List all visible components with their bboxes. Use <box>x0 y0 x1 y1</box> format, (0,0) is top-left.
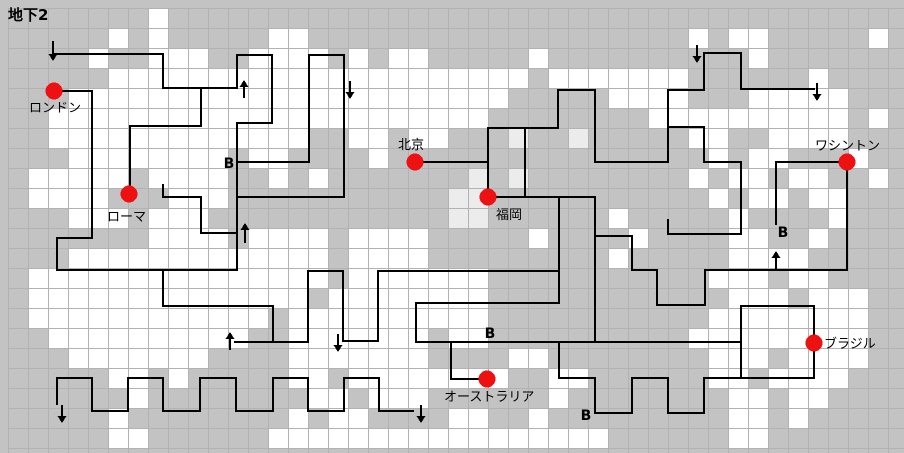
explored-cell <box>409 229 428 248</box>
explored-cell <box>109 89 128 108</box>
explored-cell <box>529 49 548 68</box>
explored-cell <box>489 429 508 448</box>
explored-cell <box>729 409 748 428</box>
explored-cell <box>289 329 308 348</box>
explored-cell <box>89 349 108 368</box>
explored-cell <box>309 229 328 248</box>
explored-cell <box>69 209 88 228</box>
explored-cell <box>89 309 108 328</box>
explored-cell <box>109 149 128 168</box>
explored-cell <box>69 349 88 368</box>
explored-cell <box>449 429 468 448</box>
map-canvas: BBBBロンドンローマ北京福岡ワシントンブラジルオーストラリア地下2 <box>0 0 904 453</box>
explored-cell <box>189 149 208 168</box>
explored-cell <box>189 309 208 328</box>
explored-cell <box>249 149 268 168</box>
explored-cell <box>689 329 708 348</box>
explored-cell <box>389 389 408 408</box>
explored-cell <box>289 409 308 428</box>
explored-cell <box>449 69 468 88</box>
explored-cell <box>29 189 48 208</box>
explored-cell <box>409 289 428 308</box>
explored-cell <box>209 309 228 328</box>
explored-cell <box>309 309 328 328</box>
explored-cell <box>189 69 208 88</box>
explored-cell <box>69 289 88 308</box>
explored-cell <box>429 369 448 388</box>
explored-cell <box>49 129 68 148</box>
city-label-london: ロンドン <box>29 101 81 116</box>
explored-cell <box>369 149 388 168</box>
explored-cell <box>349 49 368 68</box>
explored-cell <box>469 409 488 428</box>
explored-cell <box>749 189 768 208</box>
explored-cell <box>809 189 828 208</box>
explored-cell <box>729 269 748 288</box>
explored-cell <box>109 309 128 328</box>
explored-cell <box>109 69 128 88</box>
explored-cell <box>789 389 808 408</box>
explored-cell <box>109 289 128 308</box>
explored-cell <box>149 149 168 168</box>
explored-cell <box>129 309 148 328</box>
explored-cell <box>669 109 688 128</box>
explored-cell <box>789 309 808 328</box>
explored-cell <box>609 249 628 268</box>
explored-cell <box>109 329 128 348</box>
explored-cell <box>349 249 368 268</box>
explored-cell <box>829 109 848 128</box>
explored-cell <box>369 89 388 108</box>
explored-cell <box>869 109 888 128</box>
explored-cell <box>449 309 468 328</box>
explored-cell <box>369 429 388 448</box>
explored-cell <box>709 309 728 328</box>
explored-cell <box>309 49 328 68</box>
explored-cell <box>389 329 408 348</box>
explored-cell <box>789 349 808 368</box>
underground-map-level2: BBBBロンドンローマ北京福岡ワシントンブラジルオーストラリア地下2 <box>0 0 904 453</box>
explored-cell <box>369 109 388 128</box>
explored-cell <box>149 249 168 268</box>
explored-cell <box>269 429 288 448</box>
explored-cell <box>269 249 288 268</box>
explored-cell <box>349 269 368 288</box>
explored-cell <box>229 249 248 268</box>
explored-cell <box>529 229 548 248</box>
explored-cell <box>829 189 848 208</box>
explored-cell <box>529 349 548 368</box>
explored-cell <box>209 269 228 288</box>
explored-cell <box>229 89 248 108</box>
explored-cell <box>289 309 308 328</box>
explored-cell <box>149 169 168 188</box>
city-marker-rome[interactable] <box>121 186 138 203</box>
explored-cell <box>309 369 328 388</box>
explored-cell <box>69 169 88 188</box>
explored-cell <box>709 269 728 288</box>
explored-cell <box>209 189 228 208</box>
explored-cell <box>209 249 228 268</box>
explored-cell <box>189 249 208 268</box>
explored-cell <box>149 129 168 148</box>
explored-cell <box>809 269 828 288</box>
explored-cell <box>169 349 188 368</box>
b-connection-label: B <box>778 225 789 241</box>
b-connection-label: B <box>485 326 496 342</box>
explored-cell <box>29 309 48 328</box>
explored-cell <box>349 229 368 248</box>
explored-cell <box>49 169 68 188</box>
explored-cell <box>249 269 268 288</box>
explored-cell <box>109 109 128 128</box>
explored-cell <box>149 349 168 368</box>
explored-cell <box>69 329 88 348</box>
explored-cell <box>309 429 328 448</box>
explored-cell <box>429 429 448 448</box>
explored-cell <box>69 149 88 168</box>
explored-cell <box>389 229 408 248</box>
explored-cell <box>249 249 268 268</box>
explored-cell <box>469 69 488 88</box>
explored-cell <box>769 329 788 348</box>
city-marker-brazil[interactable] <box>806 335 823 352</box>
explored-cell <box>589 429 608 448</box>
explored-cell <box>509 69 528 88</box>
explored-cell <box>869 29 888 48</box>
explored-cell <box>69 189 88 208</box>
explored-cell <box>289 89 308 108</box>
explored-cell <box>289 269 308 288</box>
explored-cell <box>429 289 448 308</box>
explored-cell <box>409 109 428 128</box>
partially-explored-cell <box>469 169 488 188</box>
partially-explored-cell <box>469 209 488 228</box>
explored-cell <box>169 249 188 268</box>
explored-cell <box>189 89 208 108</box>
explored-cell <box>69 269 88 288</box>
explored-cell <box>289 249 308 268</box>
explored-cell <box>569 429 588 448</box>
explored-cell <box>849 309 868 328</box>
explored-cell <box>169 49 188 68</box>
explored-cell <box>149 309 168 328</box>
explored-cell <box>249 69 268 88</box>
explored-cell <box>109 129 128 148</box>
explored-cell <box>229 309 248 328</box>
city-marker-fukuoka[interactable] <box>480 189 497 206</box>
city-marker-london[interactable] <box>46 83 63 100</box>
explored-cell <box>149 69 168 88</box>
explored-cell <box>849 289 868 308</box>
explored-cell <box>49 269 68 288</box>
explored-cell <box>289 69 308 88</box>
explored-cell <box>449 289 468 308</box>
explored-cell <box>809 109 828 128</box>
partially-explored-cell <box>449 209 468 228</box>
explored-cell <box>349 349 368 368</box>
explored-cell <box>629 89 648 108</box>
explored-cell <box>129 389 148 408</box>
explored-cell <box>789 269 808 288</box>
explored-cell <box>149 49 168 68</box>
explored-cell <box>709 189 728 208</box>
explored-cell <box>549 69 568 88</box>
explored-cell <box>829 89 848 108</box>
explored-cell <box>829 369 848 388</box>
city-label-beijing: 北京 <box>398 138 424 153</box>
explored-cell <box>89 269 108 288</box>
city-marker-washington[interactable] <box>839 154 856 171</box>
explored-cell <box>29 289 48 308</box>
explored-cell <box>349 329 368 348</box>
explored-cell <box>249 309 268 328</box>
explored-cell <box>829 309 848 328</box>
explored-cell <box>729 249 748 268</box>
explored-cell <box>249 229 268 248</box>
explored-cell <box>509 429 528 448</box>
explored-cell <box>89 329 108 348</box>
explored-cell <box>529 429 548 448</box>
explored-cell <box>709 329 728 348</box>
explored-cell <box>729 389 748 408</box>
explored-cell <box>389 429 408 448</box>
explored-cell <box>149 269 168 288</box>
explored-cell <box>669 89 688 108</box>
explored-cell <box>749 49 768 68</box>
explored-cell <box>269 229 288 248</box>
explored-cell <box>369 129 388 148</box>
explored-cell <box>809 229 828 248</box>
explored-cell <box>389 289 408 308</box>
explored-cell <box>409 89 428 108</box>
explored-cell <box>129 269 148 288</box>
explored-cell <box>349 69 368 88</box>
explored-cell <box>209 89 228 108</box>
explored-cell <box>489 89 508 108</box>
b-connection-label: B <box>581 408 592 424</box>
explored-cell <box>709 349 728 368</box>
explored-cell <box>129 329 148 348</box>
explored-cell <box>189 329 208 348</box>
explored-cell <box>709 109 728 128</box>
explored-cell <box>129 69 148 88</box>
explored-cell <box>249 89 268 108</box>
explored-cell <box>189 349 208 368</box>
explored-cell <box>409 49 428 68</box>
explored-cell <box>649 109 668 128</box>
explored-cell <box>429 69 448 88</box>
city-label-fukuoka: 福岡 <box>496 208 522 223</box>
explored-cell <box>469 89 488 108</box>
explored-cell <box>289 349 308 368</box>
explored-cell <box>309 389 328 408</box>
city-label-brazil: ブラジル <box>824 336 876 352</box>
explored-cell <box>749 149 768 168</box>
explored-cell <box>529 409 548 428</box>
explored-cell <box>169 209 188 228</box>
explored-cell <box>229 129 248 148</box>
explored-cell <box>109 429 128 448</box>
explored-cell <box>289 229 308 248</box>
city-marker-australia[interactable] <box>479 371 496 388</box>
explored-cell <box>429 309 448 328</box>
explored-cell <box>169 369 188 388</box>
explored-cell <box>169 89 188 108</box>
explored-cell <box>69 309 88 328</box>
explored-cell <box>189 129 208 148</box>
explored-cell <box>169 129 188 148</box>
explored-cell <box>449 89 468 108</box>
explored-cell <box>469 429 488 448</box>
explored-cell <box>729 309 748 328</box>
explored-cell <box>689 169 708 188</box>
explored-cell <box>749 429 768 448</box>
explored-cell <box>309 69 328 88</box>
map-title: 地下2 <box>8 6 48 24</box>
explored-cell <box>349 309 368 328</box>
explored-cell <box>709 149 728 168</box>
explored-cell <box>389 49 408 68</box>
explored-cell <box>89 49 108 68</box>
explored-cell <box>769 189 788 208</box>
explored-cell <box>789 89 808 108</box>
explored-cell <box>389 309 408 328</box>
explored-cell <box>409 309 428 328</box>
explored-cell <box>749 109 768 128</box>
explored-cell <box>189 49 208 68</box>
explored-cell <box>469 109 488 128</box>
explored-cell <box>409 69 428 88</box>
explored-cell <box>749 349 768 368</box>
explored-cell <box>789 249 808 268</box>
explored-cell <box>29 269 48 288</box>
explored-cell <box>549 389 568 408</box>
explored-cell <box>169 269 188 288</box>
explored-cell <box>769 129 788 148</box>
explored-cell <box>349 89 368 108</box>
explored-cell <box>609 89 628 108</box>
explored-cell <box>289 429 308 448</box>
explored-cell <box>169 329 188 348</box>
explored-cell <box>349 429 368 448</box>
explored-cell <box>429 129 448 148</box>
explored-cell <box>189 169 208 188</box>
explored-cell <box>249 129 268 148</box>
explored-cell <box>409 369 428 388</box>
explored-cell <box>69 129 88 148</box>
city-marker-beijing[interactable] <box>407 154 424 171</box>
explored-cell <box>809 69 828 88</box>
explored-cell <box>749 229 768 248</box>
explored-cell <box>289 49 308 68</box>
explored-cell <box>429 109 448 128</box>
explored-cell <box>329 429 348 448</box>
explored-cell <box>509 349 528 368</box>
explored-cell <box>449 409 468 428</box>
explored-cell <box>129 429 148 448</box>
explored-cell <box>269 149 288 168</box>
explored-cell <box>549 429 568 448</box>
explored-cell <box>369 229 388 248</box>
explored-cell <box>129 149 148 168</box>
explored-cell <box>729 29 748 48</box>
explored-cell <box>309 349 328 368</box>
explored-cell <box>749 29 768 48</box>
explored-cell <box>269 169 288 188</box>
explored-cell <box>109 269 128 288</box>
explored-cell <box>329 349 348 368</box>
explored-cell <box>189 269 208 288</box>
explored-cell <box>349 409 368 428</box>
city-label-washington: ワシントン <box>815 139 880 154</box>
explored-cell <box>829 289 848 308</box>
explored-cell <box>389 249 408 268</box>
explored-cell <box>209 69 228 88</box>
explored-cell <box>829 209 848 228</box>
explored-cell <box>469 289 488 308</box>
explored-cell <box>269 129 288 148</box>
explored-cell <box>329 289 348 308</box>
explored-cell <box>169 69 188 88</box>
explored-cell <box>149 29 168 48</box>
explored-cell <box>809 309 828 328</box>
explored-cell <box>749 169 768 188</box>
city-label-rome: ローマ <box>107 210 146 225</box>
explored-cell <box>109 29 128 48</box>
explored-cell <box>609 209 628 228</box>
explored-cell <box>209 329 228 348</box>
explored-cell <box>749 329 768 348</box>
b-connection-label: B <box>224 156 235 172</box>
explored-cell <box>429 89 448 108</box>
explored-cell <box>649 89 668 108</box>
explored-cell <box>729 349 748 368</box>
explored-cell <box>369 249 388 268</box>
explored-cell <box>49 309 68 328</box>
explored-cell <box>49 329 68 348</box>
explored-cell <box>169 169 188 188</box>
explored-cell <box>109 349 128 368</box>
explored-cell <box>129 349 148 368</box>
explored-cell <box>709 129 728 148</box>
explored-cell <box>789 109 808 128</box>
explored-cell <box>169 309 188 328</box>
explored-cell <box>389 89 408 108</box>
explored-cell <box>629 69 648 88</box>
explored-cell <box>89 249 108 268</box>
explored-cell <box>269 269 288 288</box>
explored-cell <box>209 129 228 148</box>
explored-cell <box>769 109 788 128</box>
explored-cell <box>749 409 768 428</box>
explored-cell <box>669 69 688 88</box>
explored-cell <box>49 289 68 308</box>
explored-cell <box>389 369 408 388</box>
explored-cell <box>809 389 828 408</box>
explored-cell <box>369 349 388 368</box>
explored-cell <box>789 329 808 348</box>
explored-cell <box>409 389 428 408</box>
explored-cell <box>309 249 328 268</box>
explored-cell <box>749 89 768 108</box>
explored-cell <box>89 289 108 308</box>
explored-cell <box>749 389 768 408</box>
explored-cell <box>229 109 248 128</box>
explored-cell <box>409 329 428 348</box>
explored-cell <box>749 309 768 328</box>
explored-cell <box>209 109 228 128</box>
